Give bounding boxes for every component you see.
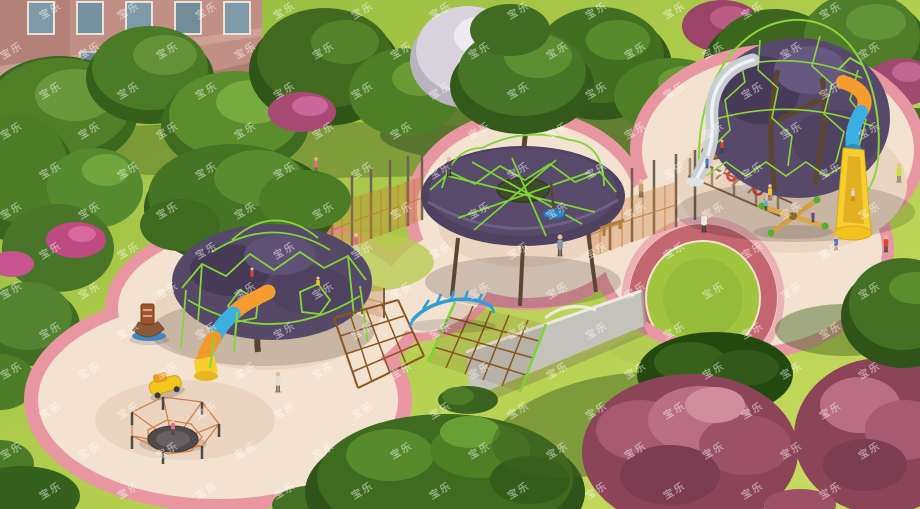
playground-rendering: 宝乐宝乐宝乐宝乐宝乐宝乐宝乐宝乐宝乐宝乐宝乐宝乐宝乐宝乐宝乐宝乐宝乐宝乐宝乐宝乐…	[0, 0, 920, 509]
rendered-scene	[0, 0, 920, 509]
disc-swing	[543, 210, 565, 219]
